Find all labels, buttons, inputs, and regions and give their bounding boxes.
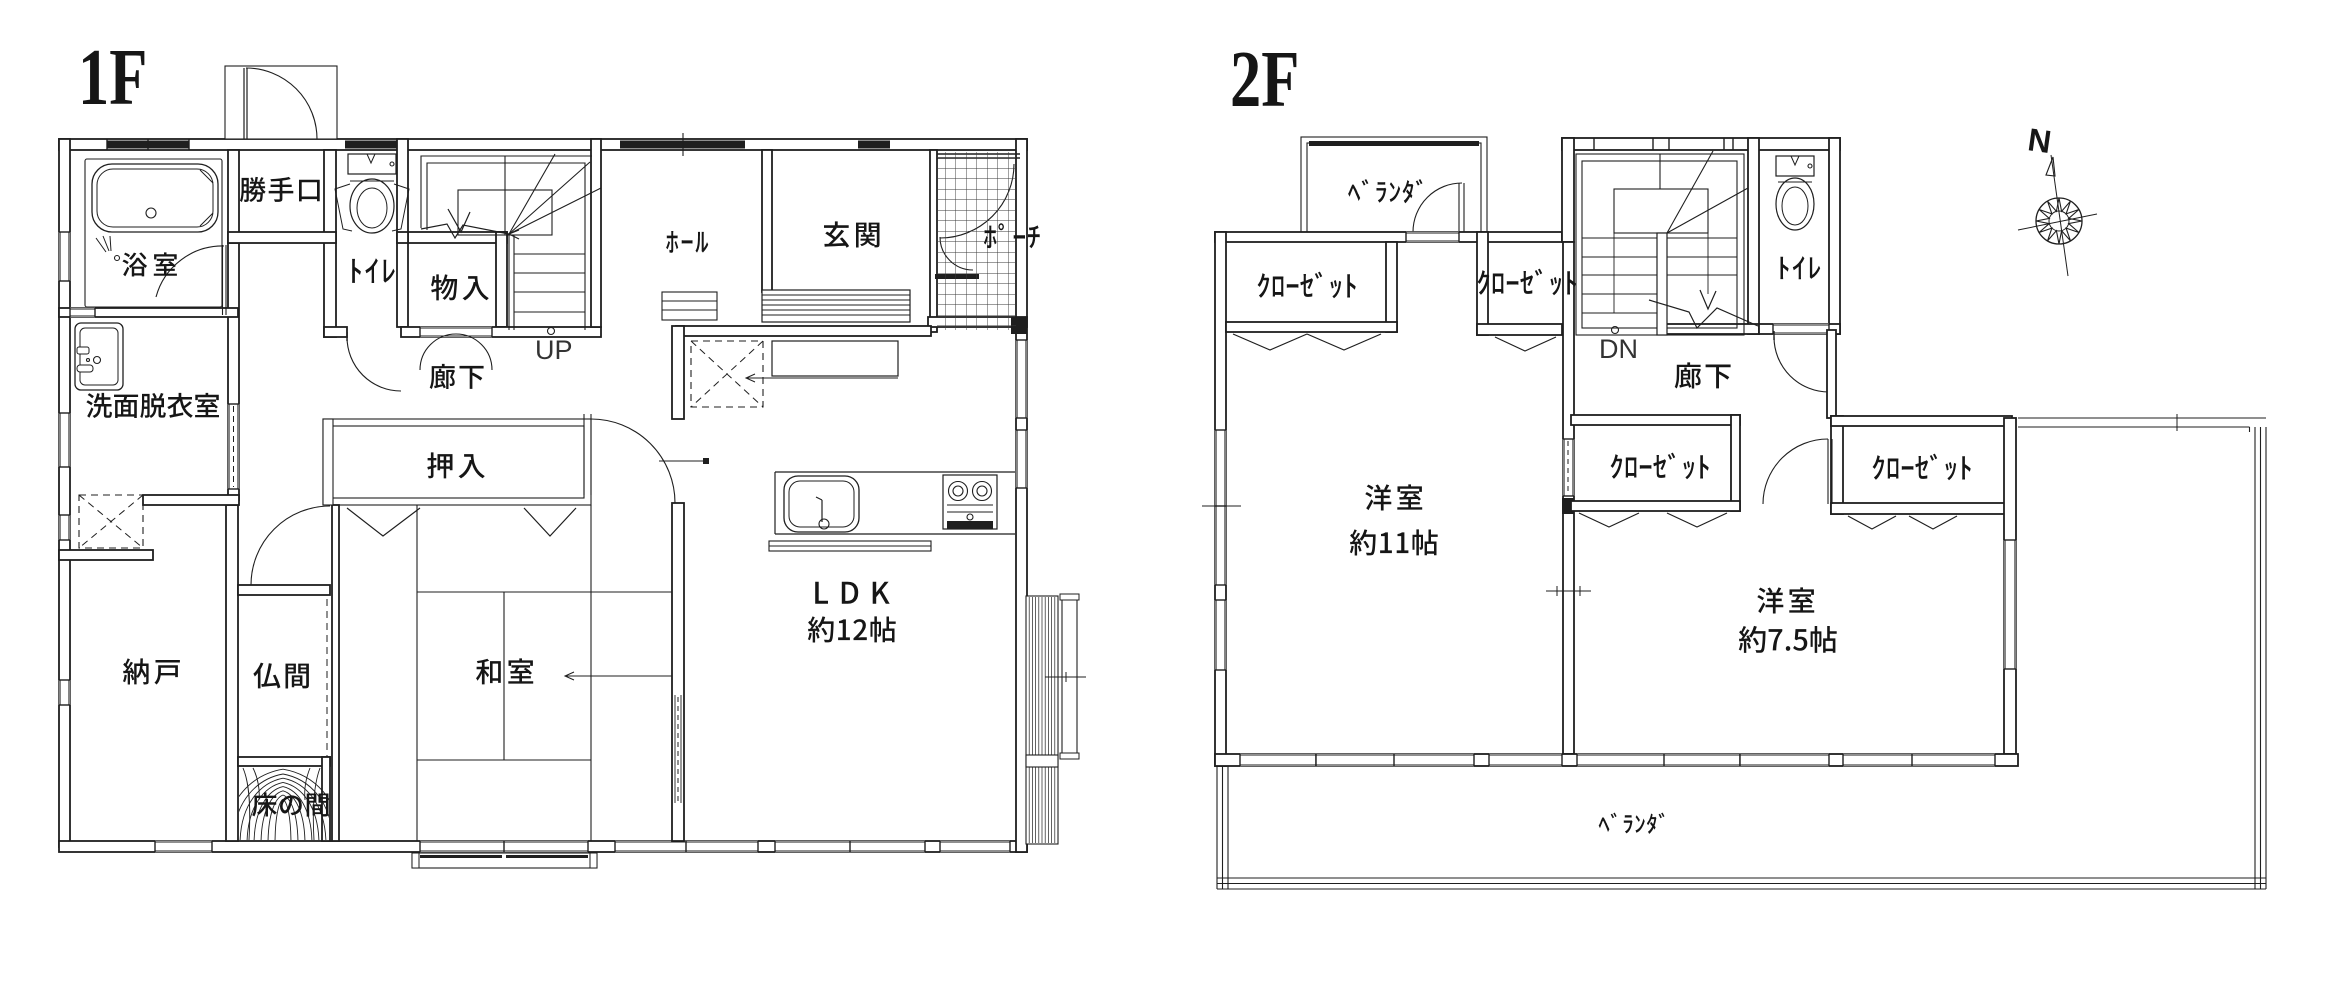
svg-text:UP: UP: [535, 335, 573, 365]
svg-text:DN: DN: [1599, 334, 1638, 364]
svg-text:1F: 1F: [78, 33, 147, 122]
svg-text:2F: 2F: [1230, 35, 1299, 124]
